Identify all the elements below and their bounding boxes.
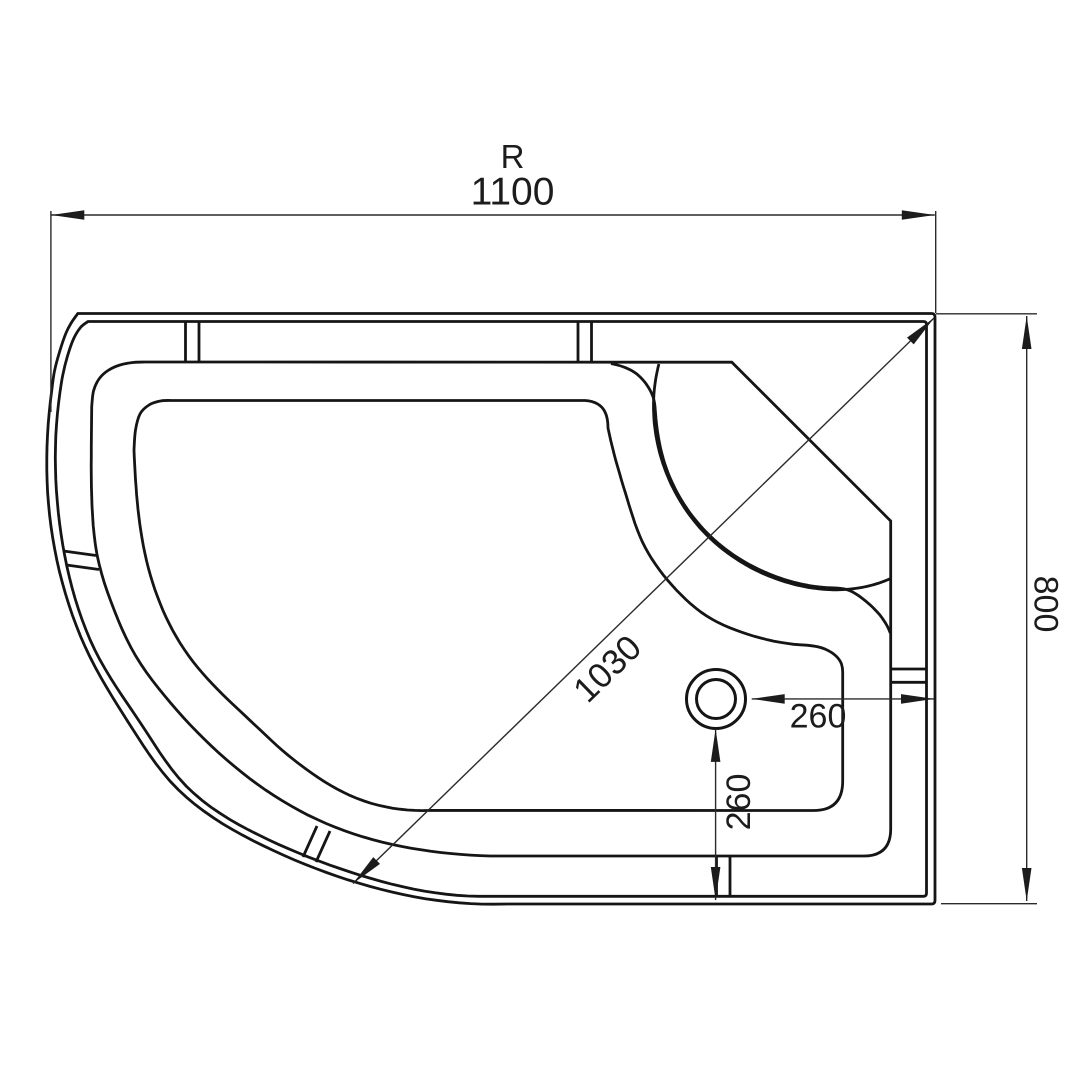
svg-text:R: R bbox=[501, 138, 525, 175]
svg-text:800: 800 bbox=[1027, 576, 1065, 633]
svg-text:260: 260 bbox=[790, 698, 847, 736]
svg-text:260: 260 bbox=[720, 774, 758, 831]
svg-text:1100: 1100 bbox=[471, 171, 555, 214]
svg-text:1030: 1030 bbox=[566, 628, 649, 710]
